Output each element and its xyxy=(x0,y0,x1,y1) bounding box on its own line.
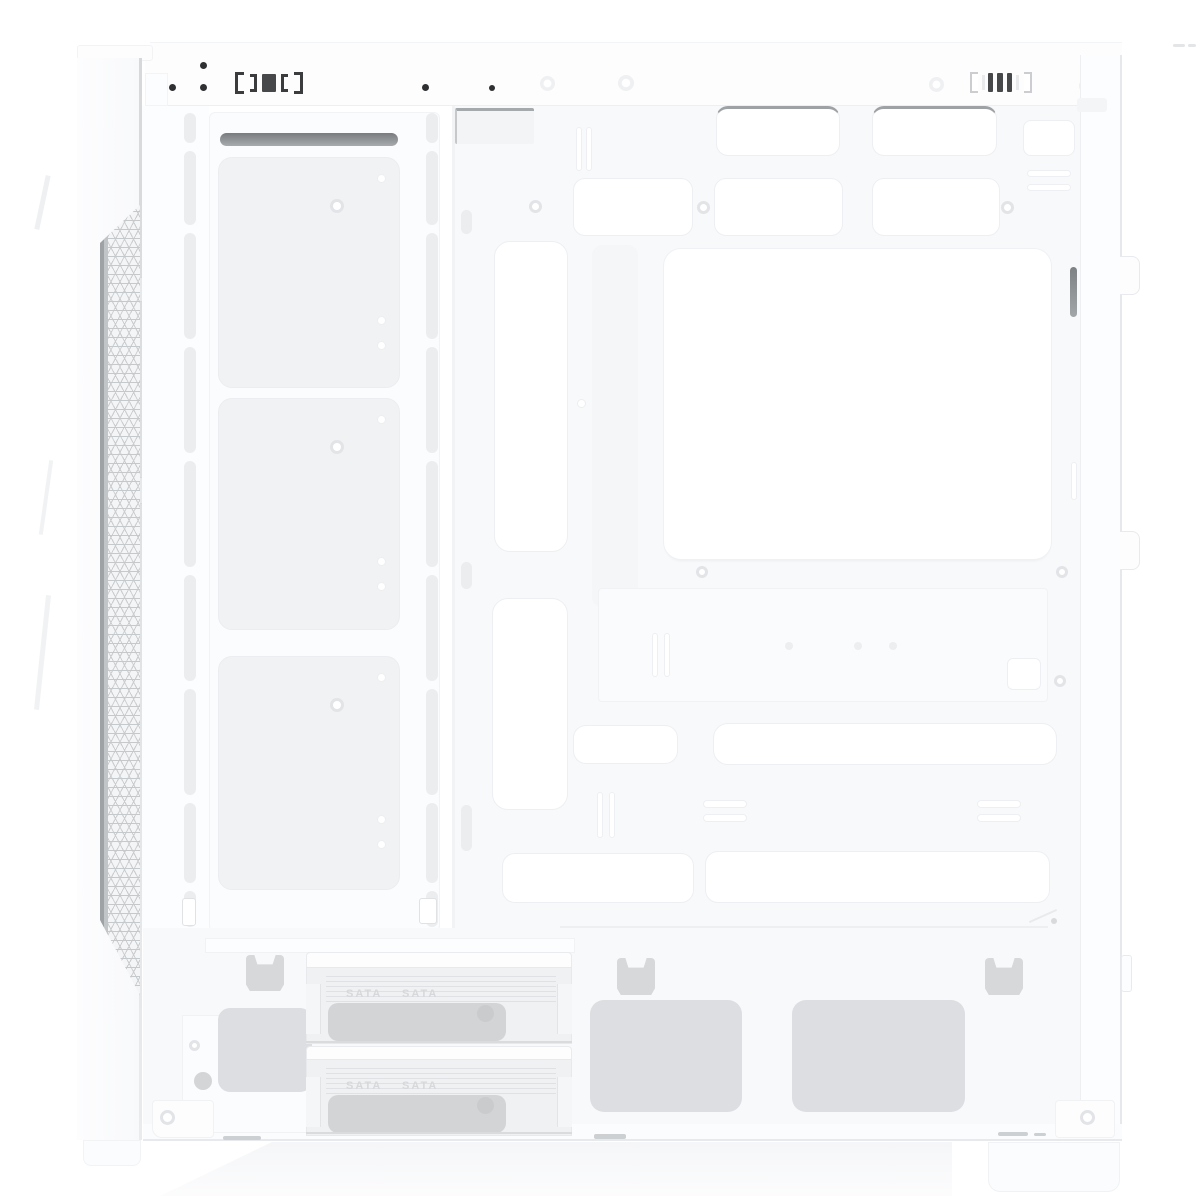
shroud-top-edge xyxy=(560,926,1048,928)
cable-cutout xyxy=(714,178,843,236)
bottom-shadow xyxy=(160,1142,960,1196)
vent-bracket-icon xyxy=(970,72,978,93)
bracket-top-slot xyxy=(220,133,398,146)
screw-hole xyxy=(200,62,207,69)
fan-mount-hole xyxy=(330,199,344,213)
standoff-hole xyxy=(1054,675,1066,687)
cable-cutout xyxy=(573,178,693,236)
fan-mount-hole xyxy=(377,415,386,424)
vent-bracket-icon xyxy=(294,72,303,94)
tray-bottom-edge xyxy=(306,1132,572,1134)
fan-cutout-panel xyxy=(218,398,400,630)
tray-grommet-hole xyxy=(477,1097,494,1114)
fan-mount-hole xyxy=(377,673,386,682)
vent-bracket-icon xyxy=(281,74,288,92)
standoff-hole xyxy=(1056,566,1068,578)
top-edge-mark xyxy=(1188,44,1196,47)
front-mesh-vent xyxy=(100,200,140,995)
standoff-hole xyxy=(697,201,710,214)
sata-embossed-label: SATA xyxy=(346,1080,382,1092)
bezel-edge-highlight xyxy=(34,595,51,710)
standoff-hole xyxy=(785,642,793,650)
rivet-hole xyxy=(618,75,634,91)
fan-rail-slot xyxy=(426,575,438,681)
fan-rail-slot xyxy=(426,233,438,339)
rear-panel-edge xyxy=(1080,55,1122,1140)
vent-bar-icon xyxy=(997,73,1003,92)
strap-slot xyxy=(703,800,747,808)
tray-edge-slot xyxy=(461,562,472,589)
tray-clip xyxy=(306,984,321,1034)
rear-raised-block xyxy=(1077,98,1107,112)
fan-rail-slot xyxy=(184,347,196,453)
fan-mount-hole xyxy=(377,316,386,325)
cable-cutout-band xyxy=(713,723,1057,765)
fan-cutout-panel xyxy=(218,157,400,388)
strap-slot xyxy=(1027,170,1071,177)
fan-mount-hole xyxy=(330,698,344,712)
fan-cutout-panel xyxy=(218,656,400,890)
vent-bar-icon xyxy=(1016,75,1019,90)
rear-edge-slot xyxy=(1071,462,1077,500)
shroud-vent-pad xyxy=(792,1000,965,1112)
fan-rail-slot xyxy=(184,689,196,795)
cable-cutout xyxy=(872,106,997,156)
sata-embossed-label: SATA xyxy=(402,988,438,1000)
vent-bar-icon xyxy=(988,73,993,92)
fan-rail-slot xyxy=(426,461,438,567)
thumbscrew-hole xyxy=(194,1072,212,1090)
vent-bracket-icon xyxy=(1024,72,1032,93)
screw-hole xyxy=(489,85,495,91)
fan-rail-slot xyxy=(426,803,438,883)
tray-clip xyxy=(306,1077,321,1127)
fan-mount-hole xyxy=(330,440,344,454)
cable-cutout xyxy=(716,106,840,156)
drive-tray: SATA SATA xyxy=(306,952,572,1044)
screw-hole xyxy=(160,1110,175,1125)
shroud-vent-pad xyxy=(590,1000,742,1112)
standoff-hole xyxy=(696,566,708,578)
fan-mount-hole xyxy=(377,174,386,183)
strap-slot xyxy=(652,633,658,677)
bracket-foot xyxy=(182,898,196,926)
bezel-edge-highlight xyxy=(39,460,53,535)
screw-hole xyxy=(169,84,176,91)
tray-groove xyxy=(452,106,455,930)
strap-slot xyxy=(703,814,747,822)
standoff-hole xyxy=(1001,201,1014,214)
fan-rail-slot xyxy=(184,113,196,143)
front-chassis-wall xyxy=(142,106,209,932)
cpu-cooler-cutout xyxy=(663,248,1052,560)
cage-vent-pad xyxy=(218,1008,312,1092)
standoff-hole xyxy=(529,200,542,213)
fan-mount-hole xyxy=(377,557,386,566)
strap-slot xyxy=(586,127,592,171)
strap-slot xyxy=(576,127,582,171)
cable-cutout-vertical xyxy=(494,241,568,552)
standoff-hole xyxy=(577,399,586,408)
strap-slot xyxy=(1027,184,1071,191)
vent-bar-icon xyxy=(982,75,985,90)
rivet-hole xyxy=(929,77,944,92)
strap-slot xyxy=(664,633,670,677)
fan-rail-slot xyxy=(184,803,196,883)
top-vent-grille-right xyxy=(970,72,1032,93)
fan-rail-slot xyxy=(184,233,196,339)
shroud-cable-cutout xyxy=(705,851,1050,903)
fan-rail-slot xyxy=(426,113,438,143)
tray-grommet-hole xyxy=(477,1005,494,1022)
fan-rail-slot xyxy=(426,689,438,795)
bottom-rail-slot xyxy=(998,1132,1028,1136)
rear-edge-slot-dark xyxy=(1070,267,1077,317)
top-panel-edge xyxy=(150,42,1122,55)
fan-mount-hole xyxy=(377,582,386,591)
strap-slot xyxy=(977,814,1021,822)
bezel-edge-highlight xyxy=(34,175,50,230)
screw-hole xyxy=(200,84,207,91)
strap-slot xyxy=(597,792,603,838)
fan-rail-slot xyxy=(184,461,196,567)
fan-mount-hole xyxy=(377,840,386,849)
screw-hole xyxy=(422,84,429,91)
cable-cutout-vertical xyxy=(492,598,568,810)
screw-hole xyxy=(1080,1110,1095,1125)
drive-cage-top xyxy=(205,938,575,953)
case-foot xyxy=(988,1142,1120,1192)
bottom-rail-slot xyxy=(223,1136,261,1140)
bottom-rail-slot xyxy=(1034,1133,1046,1136)
screw-hole xyxy=(1051,918,1057,924)
shroud-cable-cutout xyxy=(502,853,694,903)
fan-mount-hole xyxy=(377,815,386,824)
sata-embossed-label: SATA xyxy=(346,988,382,1000)
fan-rail-slot xyxy=(184,151,196,225)
top-edge-mark xyxy=(1173,44,1185,47)
pc-case-photo: SATA SATA SATA SATA xyxy=(0,0,1200,1200)
strap-slot xyxy=(609,792,615,838)
vent-bar-icon xyxy=(262,74,276,92)
side-panel-latch-tab xyxy=(1121,955,1132,992)
tray-bottom-edge xyxy=(306,1041,572,1043)
fan-rail-slot xyxy=(426,151,438,225)
side-panel-latch-tab xyxy=(1120,531,1140,570)
fan-rail-slot xyxy=(184,575,196,681)
tray-channel xyxy=(592,245,638,607)
drive-tray: SATA SATA xyxy=(306,1046,572,1136)
top-front-recess xyxy=(455,108,534,144)
vent-bar-icon xyxy=(1007,73,1012,92)
case-foot xyxy=(83,1140,141,1166)
bottom-rail-slot xyxy=(594,1134,626,1139)
standoff-hole xyxy=(889,642,897,650)
standoff-hole xyxy=(854,642,862,650)
top-rail-step xyxy=(145,73,168,106)
fan-rail-slot xyxy=(426,347,438,453)
top-vent-grille-left xyxy=(235,72,305,94)
sata-embossed-label: SATA xyxy=(402,1080,438,1092)
fan-mount-hole xyxy=(377,341,386,350)
strap-slot xyxy=(977,800,1021,808)
tray-clip xyxy=(557,1077,572,1127)
tray-clip xyxy=(557,984,572,1034)
vent-bracket-icon xyxy=(250,74,257,92)
square-cutout xyxy=(1007,658,1041,690)
tray-edge-slot xyxy=(461,805,472,851)
side-panel-latch-tab xyxy=(1120,256,1140,295)
cable-cutout-band xyxy=(573,725,678,764)
tray-edge-slot xyxy=(461,210,472,234)
vent-bracket-icon xyxy=(235,72,244,94)
bracket-foot xyxy=(419,898,437,924)
cable-cutout xyxy=(872,178,1000,236)
cable-cutout-small xyxy=(1023,120,1075,156)
screw-hole xyxy=(189,1040,200,1051)
rivet-hole xyxy=(540,76,555,91)
